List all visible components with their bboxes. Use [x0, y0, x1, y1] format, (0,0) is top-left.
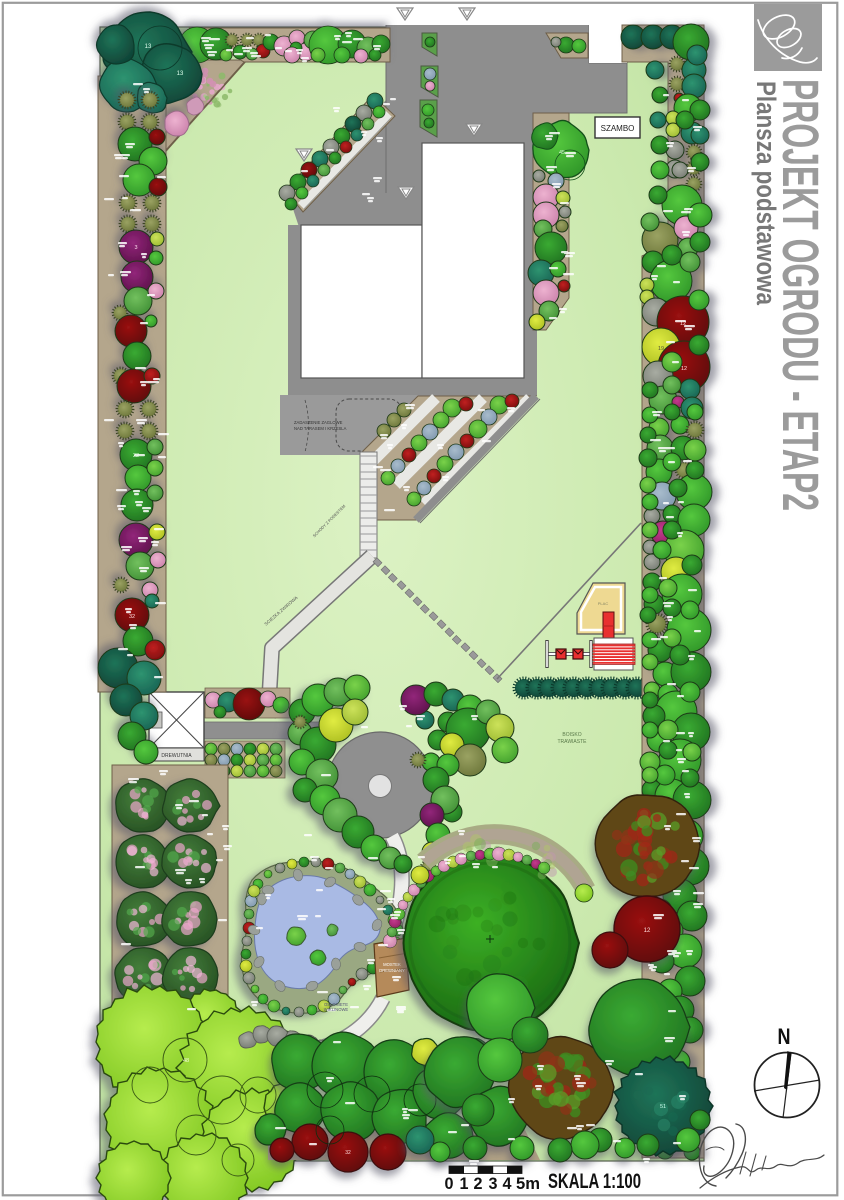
svg-text:1: 1 [460, 1174, 469, 1193]
svg-text:DREWNIANY: DREWNIANY [379, 968, 405, 973]
svg-text:Plansza podstawowa: Plansza podstawowa [751, 81, 781, 306]
svg-text:ZADASZENIE ZAGLOWE: ZADASZENIE ZAGLOWE [294, 420, 343, 425]
svg-text:PLAC: PLAC [598, 601, 609, 606]
svg-text:2: 2 [474, 1174, 483, 1193]
svg-text:DREWUTNIA: DREWUTNIA [161, 753, 192, 759]
svg-text:NAD TARASEM I KRZESLA: NAD TARASEM I KRZESLA [294, 426, 347, 431]
svg-text:12: 12 [644, 928, 651, 934]
svg-text:13: 13 [177, 71, 184, 77]
svg-text:19: 19 [658, 346, 664, 352]
svg-text:12: 12 [681, 366, 687, 372]
svg-text:SKALA 1:100: SKALA 1:100 [548, 1170, 641, 1193]
svg-text:BOISKO: BOISKO [562, 732, 581, 738]
svg-text:N: N [778, 1024, 791, 1049]
svg-text:4: 4 [503, 1174, 513, 1193]
svg-text:TRAWIASTE: TRAWIASTE [558, 739, 588, 745]
svg-text:32: 32 [129, 614, 135, 620]
svg-text:3: 3 [489, 1174, 498, 1193]
svg-text:MOSTEK: MOSTEK [383, 962, 401, 967]
svg-text:51: 51 [660, 1104, 666, 1110]
svg-text:WIKLINOWE: WIKLINOWE [324, 1007, 349, 1012]
svg-text:48: 48 [183, 1058, 189, 1064]
svg-text:45: 45 [559, 150, 565, 156]
svg-text:32: 32 [345, 1150, 351, 1156]
svg-text:SZAMBO: SZAMBO [601, 124, 635, 133]
svg-text:0: 0 [445, 1174, 454, 1193]
svg-text:5m: 5m [516, 1174, 540, 1193]
svg-text:13: 13 [145, 44, 152, 50]
svg-text:3: 3 [134, 245, 137, 251]
